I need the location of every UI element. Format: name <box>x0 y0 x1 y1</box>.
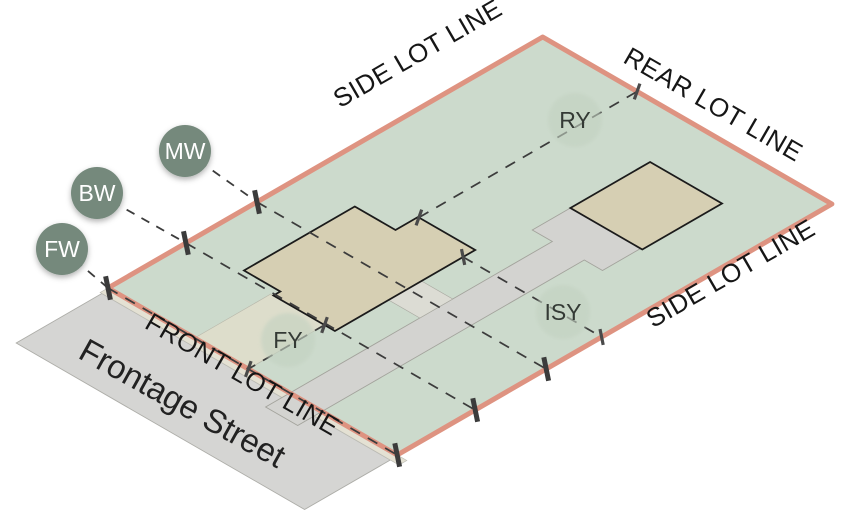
fw-badge: FW <box>36 223 88 275</box>
diagram-canvas: RY FY ISY MW BW FW SIDE LOT LINE REAR LO… <box>0 0 844 521</box>
zoning-lot-diagram: RY FY ISY MW BW FW SIDE LOT LINE REAR LO… <box>0 0 844 521</box>
isy-marker-label: ISY <box>544 299 581 325</box>
mw-badge: MW <box>159 125 211 177</box>
ry-marker: RY <box>548 93 602 147</box>
isy-marker: ISY <box>536 285 590 339</box>
bw-badge-label: BW <box>78 180 115 206</box>
fy-marker-label: FY <box>273 327 302 353</box>
bw-badge: BW <box>71 167 123 219</box>
ry-marker-label: RY <box>559 107 591 133</box>
fw-badge-label: FW <box>44 236 80 262</box>
mw-badge-label: MW <box>165 138 206 164</box>
fy-marker: FY <box>261 313 315 367</box>
